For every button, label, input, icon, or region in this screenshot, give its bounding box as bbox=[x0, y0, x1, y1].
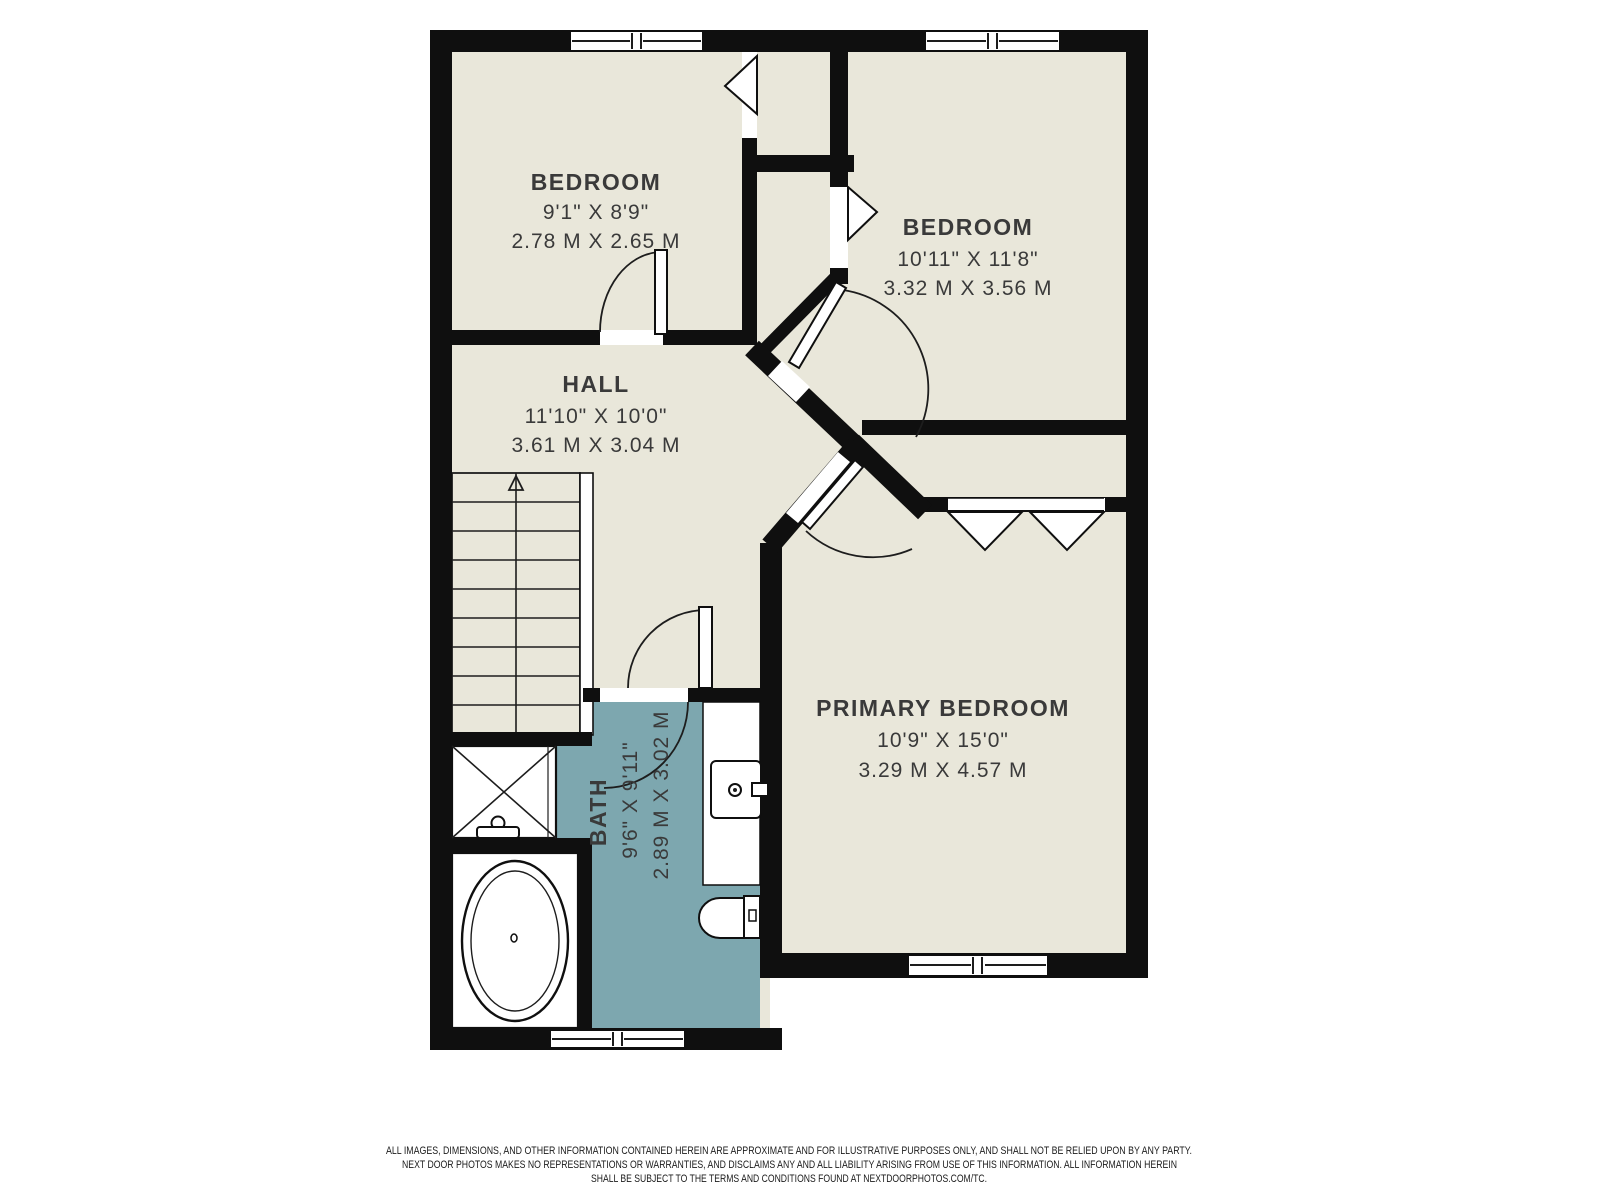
opening-bedroom1 bbox=[600, 330, 663, 345]
disclaimer-line3: SHALL BE SUBJECT TO THE TERMS AND CONDIT… bbox=[591, 1173, 987, 1185]
wall-bedroom1-bottom bbox=[430, 330, 757, 345]
vanity-sink-icon bbox=[703, 702, 768, 885]
wall-bedroom2-left-upper bbox=[830, 30, 848, 187]
hall-dim-imperial: 11'10" X 10'0" bbox=[525, 405, 668, 428]
disclaimer-line2: NEXT DOOR PHOTOS MAKES NO REPRESENTATION… bbox=[402, 1159, 1177, 1171]
primary-dim-metric: 3.29 M X 4.57 M bbox=[858, 759, 1027, 782]
bathtub-icon bbox=[462, 861, 568, 1021]
bedroom2-label: BEDROOM bbox=[903, 214, 1034, 240]
opening-primary-closet bbox=[948, 498, 1105, 511]
bath-dim-imperial: 9'6" X 9'11" bbox=[619, 741, 642, 858]
bedroom1-label: BEDROOM bbox=[531, 169, 662, 195]
disclaimer: ALL IMAGES, DIMENSIONS, AND OTHER INFORM… bbox=[386, 1145, 1192, 1185]
opening-closet-b bbox=[830, 187, 848, 268]
window-bedroom2-top bbox=[925, 31, 1060, 51]
bath-dim-metric: 2.89 M X 3.02 M bbox=[650, 710, 673, 879]
hall-dim-metric: 3.61 M X 3.04 M bbox=[511, 434, 680, 457]
primary-dim-imperial: 10'9" X 15'0" bbox=[877, 729, 1009, 752]
toilet-icon bbox=[699, 896, 760, 938]
floor-areas bbox=[452, 52, 1126, 1028]
wall-left bbox=[430, 30, 452, 1050]
window-primary-bottom bbox=[908, 955, 1048, 976]
window-bedroom1-top bbox=[570, 31, 703, 51]
opening-bath bbox=[600, 688, 688, 702]
wall-bath-primary bbox=[760, 543, 782, 978]
bedroom2-dim-metric: 3.32 M X 3.56 M bbox=[883, 277, 1052, 300]
bedroom1-dim-imperial: 9'1" X 8'9" bbox=[543, 201, 649, 224]
wall-under-stairs bbox=[430, 732, 592, 746]
floor-plan-drawing: BEDROOM 9'1" X 8'9" 2.78 M X 2.65 M BEDR… bbox=[0, 0, 1600, 1200]
wall-tub-bath bbox=[578, 845, 592, 1028]
floor-plan-page: BEDROOM 9'1" X 8'9" 2.78 M X 2.65 M BEDR… bbox=[0, 0, 1600, 1200]
bedroom2-dim-imperial: 10'11" X 11'8" bbox=[897, 248, 1038, 271]
wall-under-shower bbox=[430, 838, 592, 853]
primary-label: PRIMARY BEDROOM bbox=[816, 695, 1070, 721]
bedroom1-dim-metric: 2.78 M X 2.65 M bbox=[511, 230, 680, 253]
disclaimer-line1: ALL IMAGES, DIMENSIONS, AND OTHER INFORM… bbox=[386, 1145, 1192, 1157]
wall-bedroom2-bottom bbox=[862, 420, 1148, 435]
window-bath-bottom bbox=[550, 1030, 685, 1048]
hall-label: HALL bbox=[562, 371, 629, 397]
bath-label: BATH bbox=[585, 778, 611, 846]
